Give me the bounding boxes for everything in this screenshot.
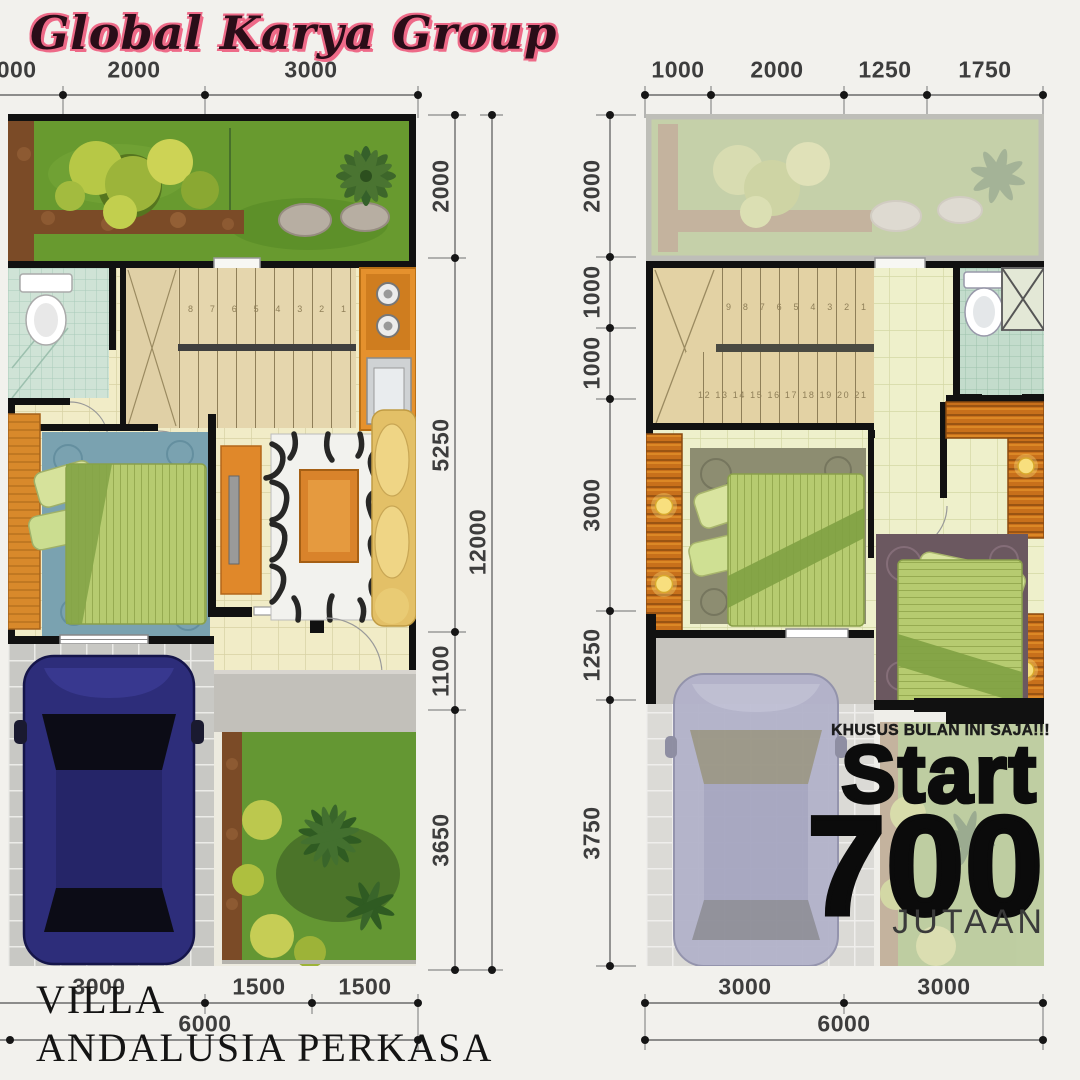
bed-3-icon bbox=[898, 551, 1028, 706]
dim-label: 3000 bbox=[917, 974, 970, 1001]
dim-label: 3750 bbox=[579, 806, 606, 859]
bedroom-3 bbox=[874, 395, 1044, 710]
dim-label: 1000 bbox=[0, 57, 37, 84]
carport bbox=[8, 644, 214, 966]
garden-front bbox=[8, 120, 416, 261]
dim-label: 5250 bbox=[428, 418, 455, 471]
dim-label: 3650 bbox=[428, 813, 455, 866]
project-name-line1: VILLA bbox=[36, 976, 493, 1024]
floor-plan-ground: 8 7 6 5 4 3 2 1 bbox=[8, 114, 416, 966]
bedroom-main bbox=[8, 414, 214, 644]
dim-label: 3000 bbox=[284, 57, 337, 84]
staircase: 8 7 6 5 4 3 2 1 bbox=[120, 268, 356, 428]
dim-label: 3000 bbox=[718, 974, 771, 1001]
sofa-icon bbox=[372, 410, 416, 626]
porch bbox=[214, 670, 416, 732]
lamp bbox=[1018, 458, 1034, 474]
project-name-line2: ANDALUSIA PERKASA bbox=[36, 1024, 493, 1072]
dim-label: 1100 bbox=[428, 645, 455, 697]
toilet-tank-upper bbox=[964, 272, 1006, 288]
lamp bbox=[656, 498, 673, 515]
dim-label: 3000 bbox=[579, 478, 606, 531]
dim-label: 12000 bbox=[465, 509, 492, 575]
lamp bbox=[656, 576, 673, 593]
dim-label: 1250 bbox=[858, 57, 911, 84]
dim-label: 2000 bbox=[579, 159, 606, 212]
wardrobe-2 bbox=[646, 434, 682, 632]
tv-screen bbox=[229, 476, 239, 564]
dim-label: 2000 bbox=[428, 159, 455, 212]
kitchen bbox=[360, 268, 416, 430]
dim-label: 1750 bbox=[958, 57, 1011, 84]
dim-label: 2000 bbox=[107, 57, 160, 84]
dim-label: 1000 bbox=[579, 265, 606, 318]
dim-label: 1000 bbox=[579, 336, 606, 389]
dim-label: 1000 bbox=[651, 57, 704, 84]
garden-below-faded bbox=[648, 116, 1042, 259]
wardrobe-3-side bbox=[1008, 438, 1044, 538]
project-name: VILLA ANDALUSIA PERKASA bbox=[36, 976, 493, 1072]
balcony-door-sill bbox=[786, 629, 848, 638]
car-icon bbox=[14, 656, 204, 964]
stair-numbers-upper: 9 8 7 6 5 4 3 2 1 bbox=[726, 302, 866, 312]
tv-cabinet bbox=[221, 446, 261, 594]
stair-numbers-lower: 12 13 14 15 16 17 18 19 20 21 bbox=[698, 390, 866, 400]
wardrobe-3-top bbox=[946, 402, 1044, 438]
promo-price-unit: JUTAAN bbox=[892, 903, 1046, 942]
zebra-rug bbox=[266, 434, 383, 620]
brand-logo: Global Karya Group bbox=[30, 6, 557, 60]
dim-label: 6000 bbox=[817, 1011, 870, 1038]
toilet-tank bbox=[20, 274, 72, 292]
palm-tree bbox=[336, 146, 396, 206]
dim-label: 1250 bbox=[579, 628, 606, 681]
staircase-upper: 9 8 7 6 5 4 3 2 1 12 13 14 15 16 17 18 1… bbox=[646, 268, 874, 430]
poster-canvas: 8 7 6 5 4 3 2 1 bbox=[0, 0, 1080, 1080]
shaft bbox=[1002, 268, 1044, 330]
dim-label: 2000 bbox=[750, 57, 803, 84]
garden-back bbox=[222, 732, 416, 966]
stair-numbers: 8 7 6 5 4 3 2 1 bbox=[188, 304, 346, 314]
